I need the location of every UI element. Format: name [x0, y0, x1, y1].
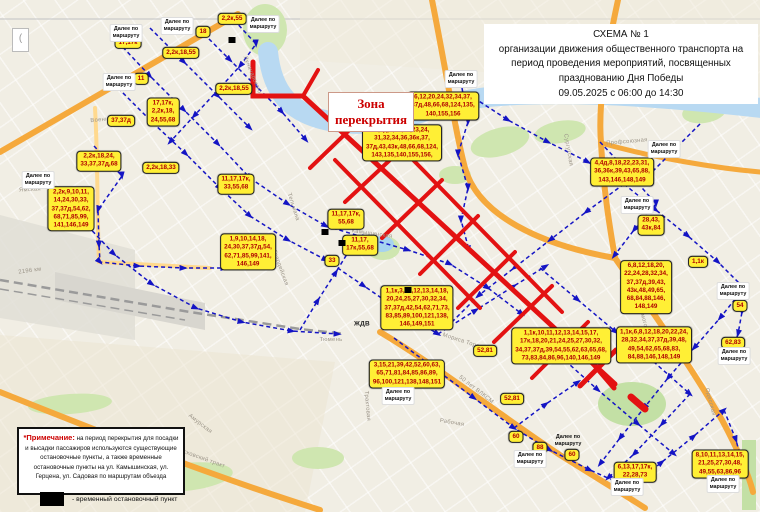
scheme-title-line1: СХЕМА № 1	[484, 28, 758, 43]
scheme-title-line5: 09.05.2025 с 06:00 до 14:30	[484, 87, 758, 102]
closure-zone-line1: Зона	[357, 96, 384, 112]
scheme-title-line2: организации движения общественного транс…	[484, 43, 758, 58]
scheme-title-line3: период проведения мероприятий, посвященн…	[484, 57, 758, 72]
note-title: *Примечание:	[23, 433, 74, 442]
scheme-title: СХЕМА № 1 организации движения обществен…	[484, 24, 758, 104]
legend: - временный остановочный пункт	[40, 492, 177, 506]
temporary-stop-legend-icon	[40, 492, 64, 506]
note-box: *Примечание: на период перекрытия для по…	[17, 427, 185, 495]
transit-scheme-map: ВоеннаяЯмскаяЛуначарскогоТельманаКамышин…	[0, 0, 760, 512]
legend-text: - временный остановочный пункт	[72, 496, 177, 503]
corner-control: (	[12, 28, 29, 52]
scheme-title-line4: празднованию Дня Победы	[484, 72, 758, 87]
closure-zone-label: Зона перекрытия	[328, 92, 414, 132]
closure-zone-line2: перекрытия	[335, 112, 407, 128]
